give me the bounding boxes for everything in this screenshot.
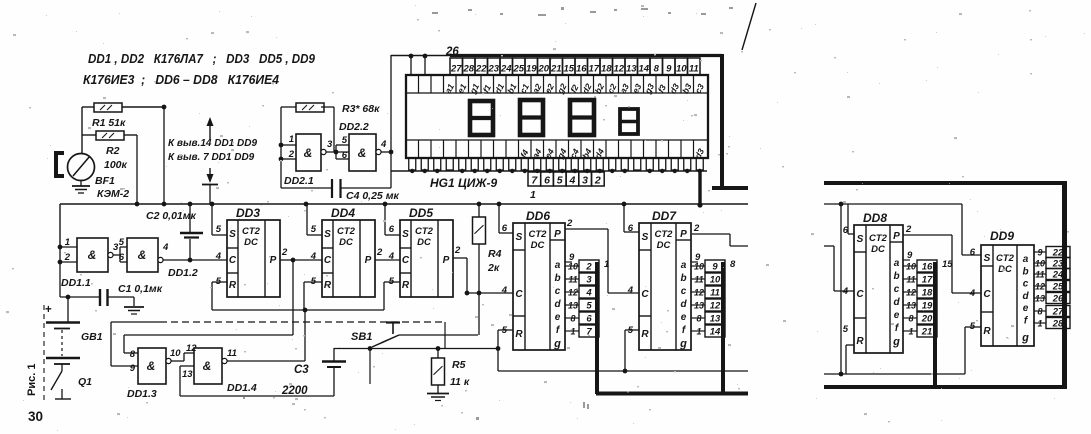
svg-text:c: c [1023,279,1029,290]
svg-text:CT2: CT2 [337,226,356,237]
svg-text:28: 28 [1052,319,1064,330]
svg-text:12: 12 [613,64,624,75]
svg-text:5: 5 [586,301,592,312]
svg-text:24: 24 [1052,270,1064,281]
svg-text:10: 10 [710,275,721,286]
svg-text:24: 24 [500,64,512,75]
svg-text:R2: R2 [106,145,120,157]
svg-text:C: C [641,289,649,300]
svg-text:BF1: BF1 [95,175,115,187]
svg-text:10: 10 [694,262,704,272]
svg-text:14: 14 [710,327,721,338]
svg-text:К выв. 7 DD1 DD9: К выв. 7 DD1 DD9 [168,152,255,163]
svg-text:13: 13 [182,369,193,380]
svg-text:2: 2 [594,175,601,187]
svg-text:8: 8 [696,314,701,324]
svg-text:2: 2 [905,224,912,235]
svg-text:DD6: DD6 [526,209,550,223]
svg-text:R3* 68к: R3* 68к [342,103,380,115]
svg-text:b: b [680,273,686,284]
svg-text:3: 3 [582,175,588,187]
svg-text:17: 17 [588,64,599,75]
svg-text:4: 4 [215,251,222,262]
svg-text:6: 6 [119,252,125,263]
svg-text:5: 5 [970,321,976,332]
svg-text:C: C [515,289,523,300]
svg-text:P: P [893,231,900,242]
svg-text:30: 30 [28,409,43,424]
svg-text:10: 10 [170,348,181,359]
svg-text:8: 8 [654,64,660,75]
svg-text:DC: DC [244,237,258,248]
svg-text:12: 12 [710,301,721,312]
svg-text:CT2: CT2 [869,233,888,244]
svg-text:22: 22 [475,64,487,75]
svg-text:14: 14 [638,64,649,75]
svg-text:6: 6 [586,314,592,325]
svg-text:R: R [856,336,864,347]
svg-text:1: 1 [908,327,913,337]
svg-text:100к: 100к [104,159,128,171]
svg-text:e: e [681,312,687,323]
svg-text:13: 13 [710,314,721,325]
svg-text:g: g [553,338,561,350]
svg-text:12: 12 [1035,282,1045,292]
svg-text:11: 11 [1035,270,1044,280]
svg-text:16: 16 [922,262,933,273]
svg-text:&: & [304,146,313,160]
svg-text:C1 0,1мк: C1 0,1мк [118,283,163,295]
svg-text:c: c [894,284,900,295]
svg-text:DD7: DD7 [652,209,677,223]
svg-text:2: 2 [585,262,592,273]
svg-text:11: 11 [710,288,720,299]
svg-text:13: 13 [906,301,916,311]
svg-text:DD1.4: DD1.4 [227,382,257,394]
svg-text:9: 9 [666,64,672,75]
svg-text:e: e [1023,303,1029,314]
svg-text:C4 0,25 мк: C4 0,25 мк [346,190,399,202]
svg-text:d: d [1022,291,1029,302]
svg-text:6: 6 [970,247,976,258]
svg-text:5: 5 [216,224,222,235]
svg-text:3: 3 [586,275,592,286]
svg-text:HG1 ЦИЖ-9: HG1 ЦИЖ-9 [430,176,498,190]
svg-text:6: 6 [389,224,395,235]
svg-text:2: 2 [64,252,71,263]
svg-text:20: 20 [537,64,549,75]
svg-text:&: & [358,146,367,160]
svg-text:11: 11 [568,275,577,285]
svg-text:4: 4 [969,288,976,299]
svg-text:g: g [679,338,687,350]
svg-text:9: 9 [1037,248,1042,258]
svg-text:S: S [642,232,649,243]
svg-text:2: 2 [376,247,383,258]
svg-text:&: & [147,359,156,373]
svg-text:b: b [554,273,560,284]
svg-text:DC: DC [657,240,671,251]
svg-text:R: R [983,326,991,337]
svg-text:C: C [856,289,864,300]
svg-text:DD9: DD9 [990,229,1014,243]
svg-text:4: 4 [585,288,592,299]
svg-text:C2 0,01мк: C2 0,01мк [146,210,197,222]
svg-text:2: 2 [281,247,288,258]
svg-text:11: 11 [694,275,703,285]
svg-text:C: C [324,255,332,266]
svg-text:Рис. 1: Рис. 1 [26,364,38,396]
svg-text:DD2.2: DD2.2 [339,121,369,133]
svg-text:4: 4 [162,242,169,253]
svg-text:9: 9 [907,250,913,261]
svg-text:27: 27 [450,64,462,75]
svg-text:CT2: CT2 [655,229,674,240]
svg-text:27: 27 [1052,307,1064,318]
svg-text:18: 18 [601,64,612,75]
svg-text:CT2: CT2 [415,226,434,237]
svg-text:CT2: CT2 [996,253,1015,264]
svg-text:К176ИЕ3 ; DD6 – DD8 К176И: К176ИЕ3 ; DD6 – DD8 К176ИЕ4 [83,72,280,87]
svg-text:DD5: DD5 [409,206,433,220]
svg-text:5: 5 [342,135,348,146]
svg-text:DC: DC [998,264,1012,275]
svg-text:25: 25 [512,64,524,75]
svg-text:К выв.14 DD1 DD9: К выв.14 DD1 DD9 [168,138,257,149]
svg-text:11 к: 11 к [450,376,470,388]
svg-text:20: 20 [921,314,933,325]
svg-text:R: R [402,280,410,291]
svg-text:26: 26 [445,46,459,58]
svg-text:16: 16 [576,64,587,75]
svg-text:5: 5 [843,324,849,335]
svg-text:S: S [324,229,331,240]
svg-text:21: 21 [921,327,933,338]
svg-text:&: & [138,248,147,262]
svg-text:6: 6 [544,175,550,187]
svg-text:&: & [88,248,97,262]
svg-text:S: S [984,253,991,264]
svg-text:2: 2 [454,245,461,256]
svg-text:b: b [1022,266,1028,277]
svg-text:S: S [857,234,864,245]
svg-text:12: 12 [694,288,704,298]
svg-text:1: 1 [1037,319,1042,329]
svg-text:DD1.1: DD1.1 [61,277,91,289]
svg-text:R: R [515,329,523,340]
svg-text:a: a [555,260,561,271]
svg-text:1: 1 [696,327,701,337]
svg-text:8: 8 [570,314,575,324]
svg-text:9: 9 [130,363,136,374]
svg-text:C: C [983,289,991,300]
svg-text:d: d [893,297,900,308]
svg-text:P: P [365,255,372,266]
svg-text:g: g [892,336,900,348]
svg-text:18: 18 [922,288,933,299]
svg-text:P: P [443,255,450,266]
svg-text:10: 10 [1035,259,1045,269]
svg-text:CT2: CT2 [242,226,261,237]
svg-text:+: + [45,304,52,316]
svg-text:11: 11 [689,64,699,75]
svg-text:23: 23 [487,64,499,75]
svg-text:b: b [893,271,899,282]
svg-text:3: 3 [327,139,333,150]
svg-text:DC: DC [417,237,431,248]
svg-text:DC: DC [531,240,545,251]
svg-text:13: 13 [1035,294,1045,304]
svg-text:DC: DC [339,237,353,248]
svg-text:c: c [555,286,561,297]
svg-text:11: 11 [906,275,915,285]
svg-text:10: 10 [676,64,687,75]
svg-text:DD1.2: DD1.2 [168,267,198,279]
svg-text:8: 8 [130,349,136,360]
svg-text:DD4: DD4 [331,206,355,220]
svg-text:DD3: DD3 [236,206,260,220]
svg-text:1: 1 [289,134,294,145]
svg-text:a: a [894,258,900,269]
svg-text:R: R [641,329,649,340]
svg-text:10: 10 [568,262,578,272]
svg-text:21: 21 [550,64,562,75]
svg-text:26: 26 [1052,294,1064,305]
svg-text:c: c [681,286,687,297]
svg-text:25: 25 [1052,282,1064,293]
svg-text:6: 6 [342,150,348,161]
svg-text:R: R [229,280,237,291]
svg-text:4: 4 [627,285,634,296]
svg-text:4: 4 [501,285,508,296]
svg-text:13: 13 [694,301,704,311]
svg-text:R5: R5 [452,359,466,371]
svg-text:8: 8 [730,259,736,270]
svg-text:GB1: GB1 [81,331,103,343]
svg-text:e: e [555,312,561,323]
svg-text:4: 4 [568,175,575,187]
svg-text:9: 9 [712,262,718,273]
svg-text:2к: 2к [487,262,500,274]
svg-text:SB1: SB1 [351,331,372,343]
svg-text:C: C [229,255,237,266]
svg-text:S: S [402,229,409,240]
svg-text:P: P [680,229,687,240]
svg-text:11: 11 [227,348,237,359]
svg-text:4: 4 [842,286,849,297]
svg-text:10: 10 [906,262,916,272]
svg-text:R4: R4 [488,248,502,260]
svg-text:C: C [402,255,410,266]
svg-text:1: 1 [570,327,575,337]
svg-text:1: 1 [65,237,70,248]
svg-text:R1 51к: R1 51к [92,117,126,129]
svg-text:4: 4 [380,139,387,150]
svg-text:S: S [516,232,523,243]
svg-text:КЭМ-2: КЭМ-2 [97,188,129,200]
svg-text:19: 19 [526,64,537,75]
svg-text:2: 2 [693,223,700,234]
svg-text:e: e [894,310,900,321]
svg-text:8: 8 [1037,307,1042,317]
svg-text:d: d [680,299,687,310]
svg-text:DD2.1: DD2.1 [284,175,314,187]
svg-text:DD1 , DD2 К176ЛА7 ; DD3: DD1 , DD2 К176ЛА7 ; DD3 DD5 , DD9 [88,51,316,66]
svg-text:&: & [203,359,212,373]
svg-text:2: 2 [288,149,295,160]
svg-text:17: 17 [922,275,933,286]
svg-text:1: 1 [530,189,536,201]
svg-text:19: 19 [922,301,933,312]
svg-text:S: S [229,229,236,240]
svg-text:28: 28 [462,64,474,75]
svg-text:2: 2 [566,218,573,229]
svg-text:a: a [681,260,687,271]
svg-text:C3: C3 [294,364,309,376]
svg-text:a: a [1023,254,1029,265]
svg-text:g: g [1021,332,1029,344]
svg-text:P: P [554,229,561,240]
svg-text:CT2: CT2 [529,229,548,240]
svg-text:5: 5 [311,224,317,235]
svg-text:15: 15 [563,64,574,75]
svg-text:5: 5 [119,237,125,248]
svg-text:2200: 2200 [281,385,308,397]
svg-text:Q1: Q1 [78,376,92,388]
svg-text:8: 8 [908,314,913,324]
svg-text:R: R [324,280,332,291]
svg-text:5: 5 [557,175,563,187]
svg-text:DD1.3: DD1.3 [127,388,157,400]
svg-text:d: d [554,299,561,310]
svg-text:12: 12 [906,288,916,298]
svg-text:DC: DC [871,244,885,255]
svg-text:13: 13 [568,301,578,311]
svg-text:DD8: DD8 [863,211,887,225]
